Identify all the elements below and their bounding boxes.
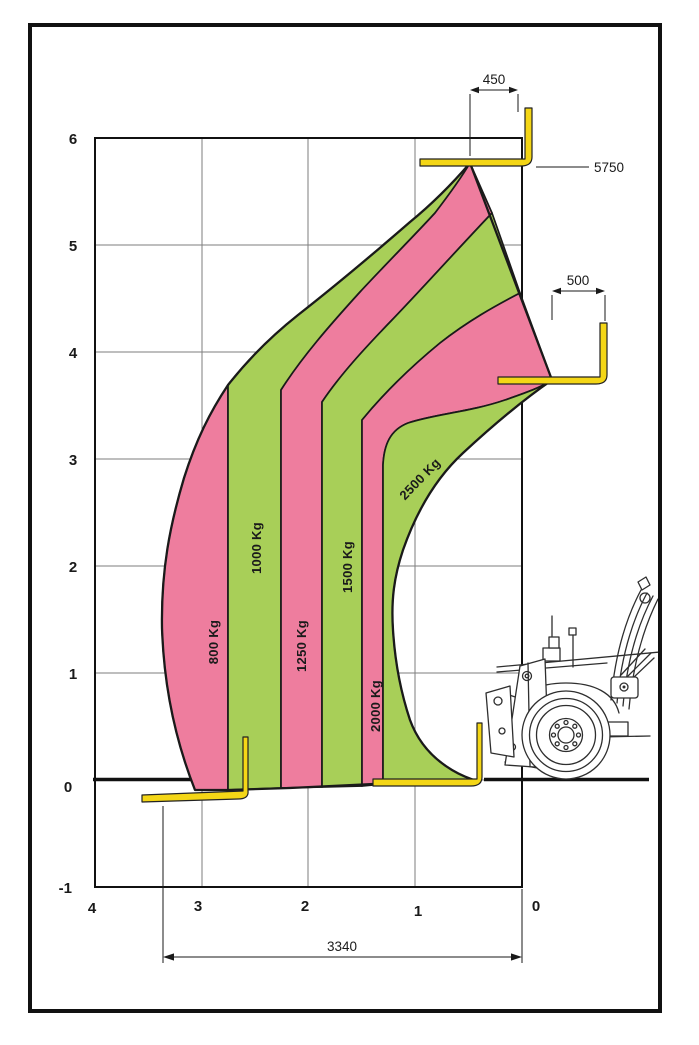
- front-wheel: [522, 691, 610, 779]
- x-tick-2: 2: [301, 898, 309, 915]
- y-tick-0: 0: [64, 779, 72, 796]
- load-chart-page: 6 5 4 3 2 1 0 -1 4 3 2 1 0 800 Kg 1000 K…: [0, 0, 699, 1045]
- x-tick-0: 0: [532, 898, 540, 915]
- y-tick-1: 1: [69, 666, 77, 683]
- y-tick-3: 3: [69, 452, 77, 469]
- y-tick-6: 6: [69, 131, 77, 148]
- zone-label-800: 800 Kg: [206, 620, 221, 664]
- fork-bracket: [486, 686, 514, 757]
- zone-label-1000: 1000 Kg: [249, 522, 264, 574]
- x-tick-1: 1: [414, 903, 422, 920]
- dim-5750-label: 5750: [594, 160, 624, 175]
- dim-3340-label: 3340: [327, 939, 357, 954]
- x-tick-4: 4: [88, 900, 97, 917]
- zone-label-1250: 1250 Kg: [294, 620, 309, 672]
- y-tick-5: 5: [69, 238, 77, 255]
- panel-light-dot: [623, 686, 626, 689]
- y-tick-2: 2: [69, 559, 77, 576]
- boom-base-block2: [549, 637, 559, 648]
- x-tick-3: 3: [194, 898, 202, 915]
- y-tick-minus1: -1: [59, 880, 72, 897]
- zone-label-2000: 2000 Kg: [368, 680, 383, 732]
- load-chart-figure: 6 5 4 3 2 1 0 -1 4 3 2 1 0 800 Kg 1000 K…: [0, 0, 699, 1045]
- y-tick-4: 4: [69, 345, 78, 362]
- zone-label-1500: 1500 Kg: [340, 541, 355, 593]
- hub: [550, 719, 583, 752]
- dim-500-label: 500: [567, 273, 590, 288]
- dim-450-label: 450: [483, 72, 506, 87]
